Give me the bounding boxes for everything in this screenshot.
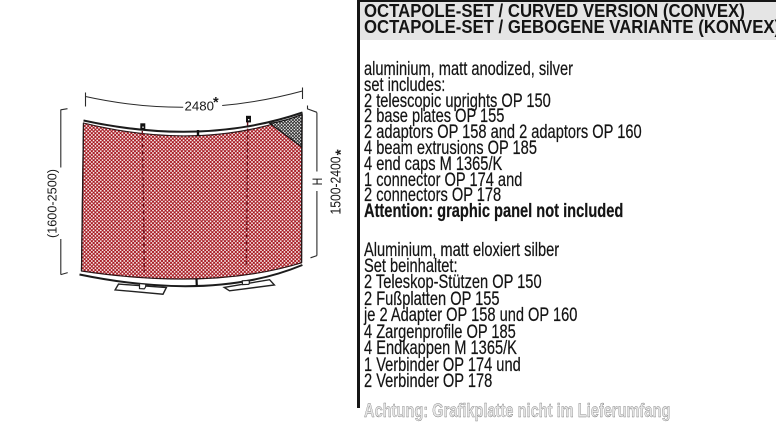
svg-text:1500-2400: 1500-2400 (328, 157, 344, 215)
svg-text:H: H (310, 178, 325, 186)
svg-text:(1600-2500): (1600-2500) (45, 169, 60, 238)
svg-text:*: * (213, 95, 219, 111)
svg-text:2480: 2480 (185, 99, 215, 114)
svg-text:*: * (332, 149, 349, 155)
